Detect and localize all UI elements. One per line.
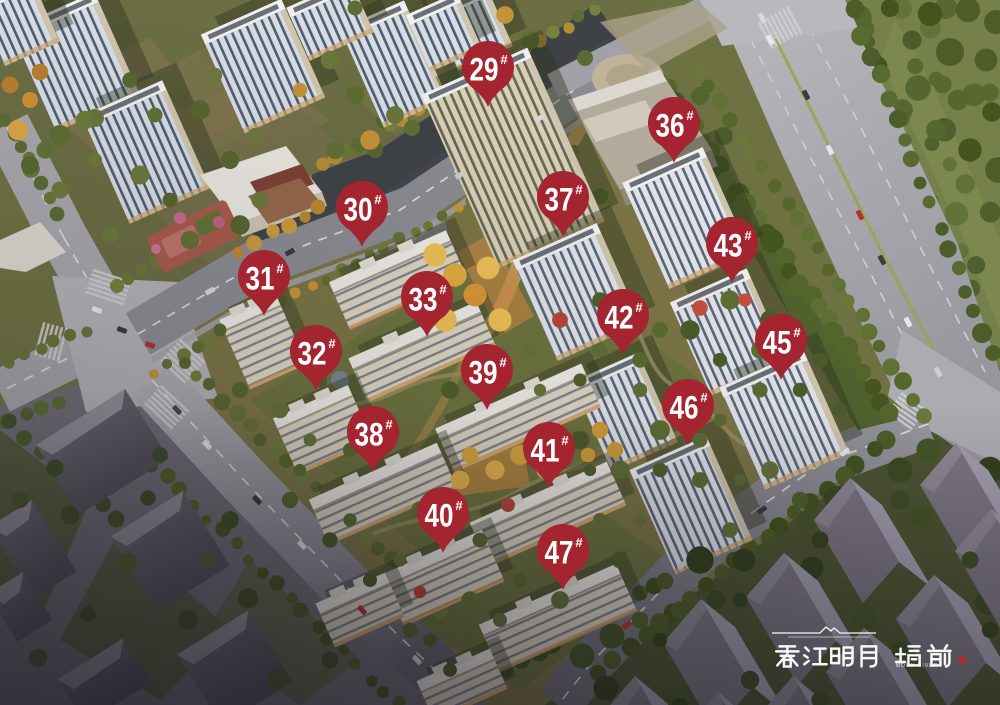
svg-text:#: #: [276, 261, 284, 276]
svg-text:39: 39: [469, 355, 498, 391]
svg-text:#: #: [500, 52, 508, 67]
svg-text:#: #: [575, 182, 583, 197]
svg-text:47: 47: [545, 535, 574, 571]
svg-text:41: 41: [531, 433, 560, 469]
svg-text:#: #: [793, 325, 801, 340]
svg-text:#: #: [455, 498, 463, 513]
svg-text:29: 29: [470, 52, 499, 88]
svg-text:#: #: [686, 108, 694, 123]
svg-text:40: 40: [425, 498, 454, 534]
svg-text:#: #: [385, 417, 393, 432]
svg-text:#: #: [328, 336, 336, 351]
svg-text:37: 37: [545, 182, 574, 218]
svg-text:36: 36: [656, 108, 685, 144]
svg-text:46: 46: [670, 390, 699, 426]
svg-text:#: #: [374, 192, 382, 207]
svg-text:42: 42: [605, 300, 634, 336]
svg-text:#: #: [499, 355, 507, 370]
svg-text:#: #: [575, 535, 583, 550]
svg-text:32: 32: [298, 336, 327, 372]
svg-text:30: 30: [344, 192, 373, 228]
svg-text:#: #: [744, 228, 752, 243]
svg-text:45: 45: [763, 325, 792, 361]
svg-text:#: #: [561, 433, 569, 448]
svg-text:31: 31: [246, 261, 275, 297]
svg-text:33: 33: [409, 282, 438, 318]
svg-text:#: #: [700, 390, 708, 405]
svg-text:38: 38: [355, 417, 384, 453]
svg-text:MOON RIVER: MOON RIVER: [896, 663, 938, 669]
svg-text:#: #: [439, 282, 447, 297]
svg-text:43: 43: [714, 228, 743, 264]
svg-text:#: #: [635, 300, 643, 315]
